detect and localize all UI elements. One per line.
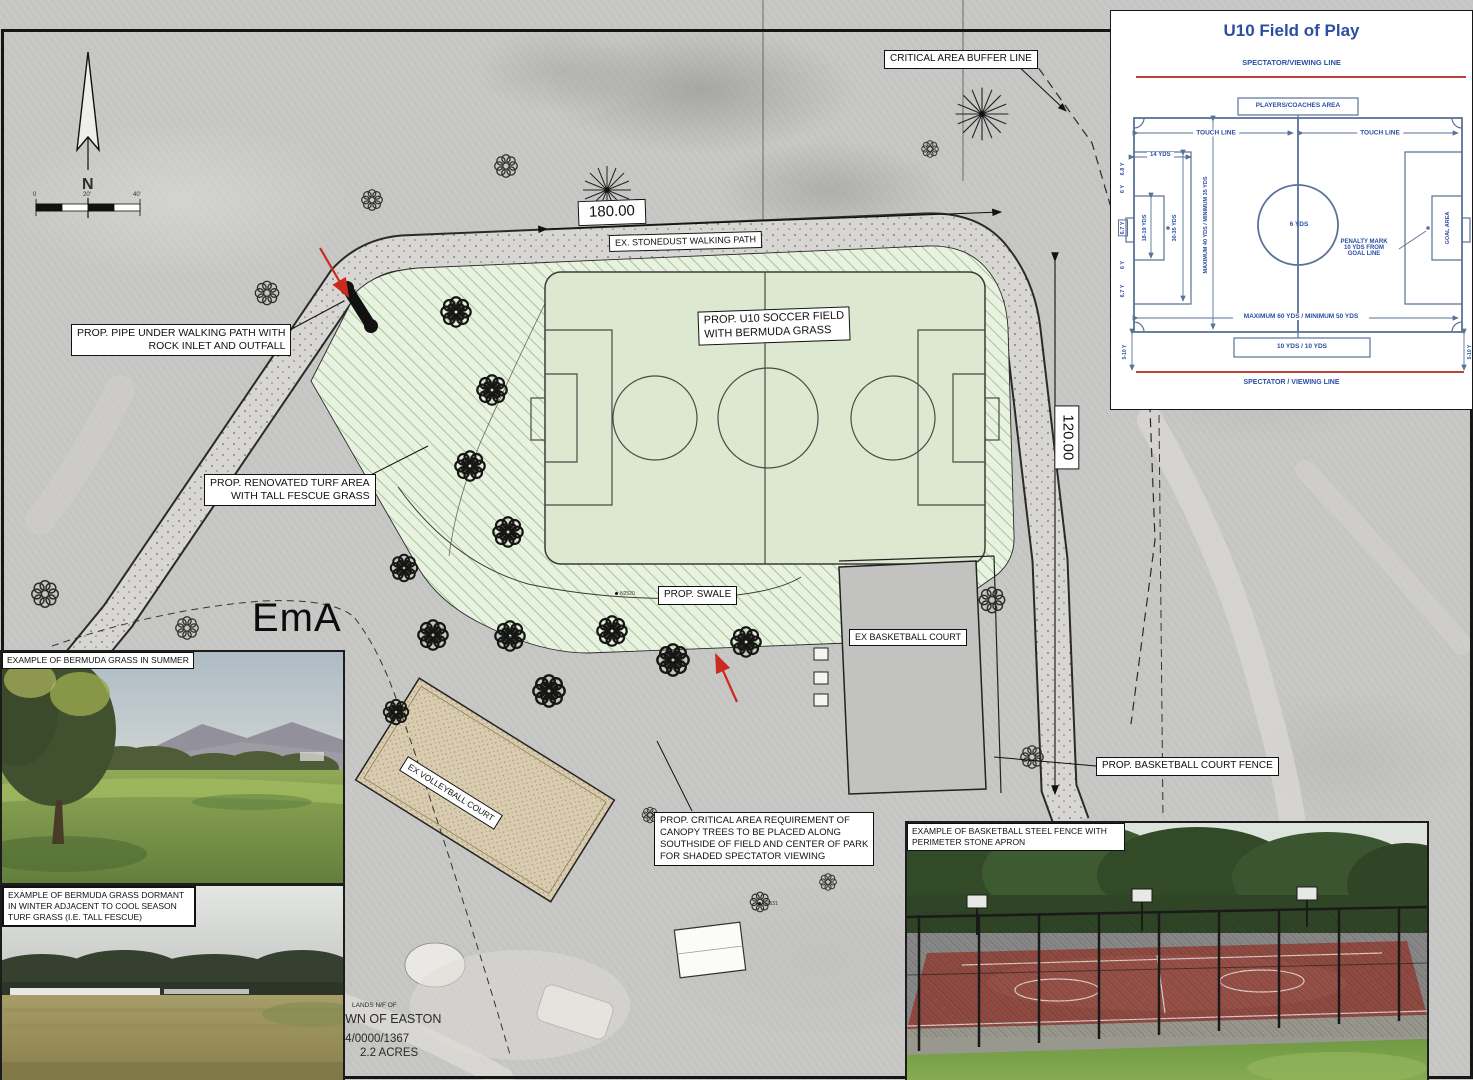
photo-fence-art — [907, 823, 1427, 1080]
buildings — [405, 922, 746, 1060]
label-soccer-field: PROP. U10 SOCCER FIELD WITH BERMUDA GRAS… — [697, 306, 850, 345]
goal-seg-dim: 6.8 Y — [1120, 163, 1126, 176]
spot-dot-icon — [615, 592, 618, 595]
penalty-depth-dim: 14 YDS — [1147, 152, 1174, 158]
center-circle-dim: 6 YDS — [1281, 221, 1317, 228]
corner-dim-right: 5-10 Y — [1467, 345, 1473, 360]
goal-seg-dim: 6 Y — [1120, 185, 1126, 193]
photo-caption: EXAMPLE OF BERMUDA GRASS IN SUMMER — [2, 652, 194, 669]
scale-tick: 20' — [83, 192, 91, 198]
goal-area-span-dim: 18-19 YDS — [1142, 212, 1148, 245]
label-renovated-turf: PROP. RENOVATED TURF AREA WITH TALL FESC… — [204, 474, 376, 506]
photo-bermuda-summer: EXAMPLE OF BERMUDA GRASS IN SUMMER — [0, 650, 345, 885]
touch-line-right: TOUCH LINE — [1357, 130, 1403, 137]
scale-tick: 0 — [33, 192, 36, 198]
parcel-owner: TOWN OF EASTON — [328, 1012, 441, 1026]
scale-bar — [36, 199, 140, 216]
spot-marker: N2531 — [758, 901, 778, 907]
soil-unit-label: EmA — [252, 596, 342, 641]
goal-area-label: GOAL AREA — [1445, 212, 1451, 245]
parcel-lands: LANDS N/F OF — [352, 1002, 397, 1009]
touch-line-left: TOUCH LINE — [1193, 130, 1239, 137]
label-swale: PROP. SWALE — [658, 586, 737, 605]
site-plan-sheet: CRITICAL AREA BUFFER LINE EX. STONEDUST … — [0, 0, 1473, 1080]
label-basketball-fence: PROP. BASKETBALL COURT FENCE — [1096, 757, 1279, 776]
goal-bottom-dim: 10 YDS / 10 YDS — [1234, 343, 1370, 350]
dimension-width: 180.00 — [578, 199, 647, 226]
steel-fence — [907, 907, 1427, 1051]
photo-caption: EXAMPLE OF BERMUDA GRASS DORMANT IN WINT… — [2, 886, 196, 927]
length-dimension: MAXIMUM 60 YDS / MINIMUM 50 YDS — [1233, 313, 1369, 320]
basketball-court — [814, 556, 1001, 794]
photo-summer-art — [2, 652, 343, 883]
dimension-height: 120.00 — [1055, 405, 1080, 469]
spectator-line-bottom: SPECTATOR / VIEWING LINE — [1111, 379, 1472, 386]
penalty-span-dim: 30-35 YDS — [1172, 212, 1178, 245]
players-coaches-area: PLAYERS/COACHES AREA — [1238, 102, 1358, 109]
parcel-area: 2.2 ACRES — [360, 1047, 418, 1059]
label-basketball-court: EX BASKETBALL COURT — [849, 629, 967, 646]
spot-dot-icon — [758, 902, 761, 905]
fence-strip — [10, 988, 160, 995]
spectator-line-top: SPECTATOR/VIEWING LINE — [1111, 58, 1472, 67]
photo-bermuda-dormant: EXAMPLE OF BERMUDA GRASS DORMANT IN WINT… — [0, 884, 345, 1080]
label-critical-area-buffer: CRITICAL AREA BUFFER LINE — [884, 50, 1038, 69]
spot-marker: N2520 — [615, 591, 635, 597]
goal-seg-dim: 6 Y — [1120, 261, 1126, 269]
corner-dim-left: 5-10 Y — [1122, 345, 1128, 360]
goal-seg-dim: 6.7 Y — [1118, 220, 1128, 237]
width-dimension: MAXIMUM 40 YDS / MINIMUM 35 YDS — [1203, 174, 1209, 277]
survey-lines — [763, 0, 963, 227]
label-pipe: PROP. PIPE UNDER WALKING PATH WITH ROCK … — [71, 324, 291, 356]
u10-field-inset: U10 Field of Play — [1110, 10, 1473, 410]
photo-basketball-fence: EXAMPLE OF BASKETBALL STEEL FENCE WITH P… — [905, 821, 1429, 1080]
goal-seg-dim: 6.7 Y — [1120, 285, 1126, 298]
photo-caption: EXAMPLE OF BASKETBALL STEEL FENCE WITH P… — [907, 823, 1125, 851]
scale-tick: 40' — [133, 192, 141, 198]
starburst-tree-icon — [956, 88, 1009, 141]
penalty-mark-note: PENALTY MARK 10 YDS FROM GOAL LINE — [1333, 239, 1395, 257]
label-canopy-note: PROP. CRITICAL AREA REQUIREMENT OF CANOP… — [654, 812, 874, 866]
